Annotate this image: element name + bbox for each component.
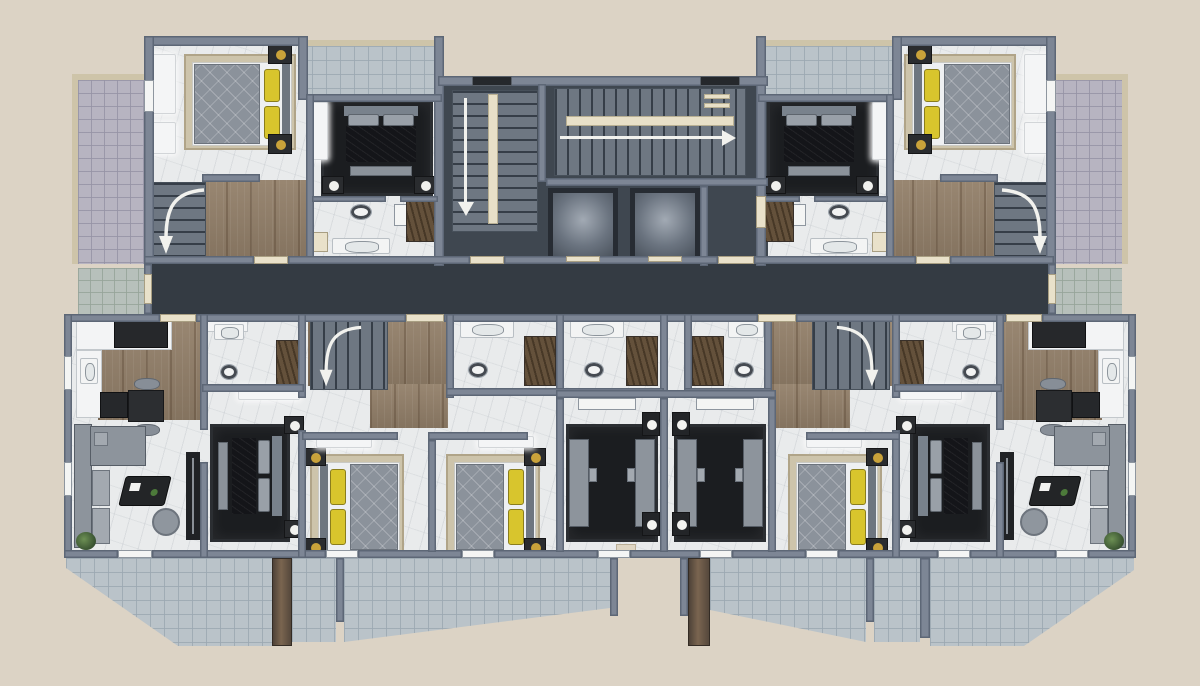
plant: [1104, 532, 1124, 550]
down-arrow-icon-head: [458, 202, 474, 216]
bed3-right-headboard: [918, 436, 928, 516]
door-threshold: [1048, 274, 1056, 304]
door-threshold: [916, 256, 950, 264]
sill-top-left: [296, 40, 440, 46]
nightstand-lamp: [902, 525, 912, 535]
bed3-right-duvet: [944, 438, 968, 514]
wall: [806, 432, 900, 440]
balcony-door: [462, 550, 494, 558]
nightstand: [304, 448, 326, 466]
wall: [892, 430, 900, 558]
nightstand-lamp: [421, 181, 431, 191]
nightstand-lamp: [863, 181, 873, 191]
door-threshold: [160, 314, 196, 322]
toilet: [962, 364, 980, 380]
toilet: [350, 204, 372, 220]
shower-upper-left: [406, 200, 436, 242]
wall: [336, 558, 344, 622]
balcony-left-upper: [78, 80, 150, 264]
nightstand-lamp: [916, 140, 926, 150]
wall: [754, 256, 916, 264]
nightstand-lamp: [276, 50, 286, 60]
nightstand: [322, 176, 344, 194]
nightstand-lamp: [531, 453, 541, 463]
sill-left-h: [72, 74, 152, 80]
balcony-door: [938, 550, 970, 558]
coffee-table-left-plant-dot: [150, 489, 159, 496]
right-arrow-icon-line: [560, 136, 724, 139]
nightstand: [908, 134, 932, 154]
nightstand-lamp: [873, 453, 883, 463]
sitting-room-right-sofas-cushion: [697, 468, 705, 482]
wall: [892, 36, 902, 100]
coffee-table-left: [118, 476, 171, 506]
bed2-right-duvet: [784, 126, 854, 162]
floor-plan-image: [0, 0, 1200, 686]
core-stair-mark-1: [704, 94, 730, 99]
bed2-left-duvet: [346, 126, 416, 162]
wall: [940, 174, 998, 182]
wall: [302, 432, 398, 440]
down-arrow-icon: [464, 98, 468, 216]
bed4-left-pillow: [330, 469, 346, 505]
nightstand: [414, 176, 436, 194]
sink-bath3-left-basin: [582, 324, 614, 337]
shower-bath2-left: [524, 336, 556, 386]
door-threshold: [758, 314, 796, 322]
down-arrow-icon-line: [464, 98, 467, 204]
door-threshold: [718, 256, 754, 264]
tv-unit-left: [186, 452, 200, 540]
lamp-table-lamp: [677, 520, 687, 530]
bed2-right-bench: [788, 166, 850, 176]
kitchen-left-fridge: [114, 320, 168, 348]
wall: [756, 36, 766, 266]
wall: [428, 432, 528, 440]
wall: [700, 186, 708, 266]
balcony-right-upper: [1050, 80, 1122, 264]
wall: [200, 462, 208, 558]
l-sofa-right-back: [1108, 424, 1126, 548]
nightstand: [268, 134, 292, 154]
coffee-table-right-deco: [1039, 483, 1051, 491]
wall: [64, 314, 160, 322]
nightstand: [908, 44, 932, 64]
wall: [494, 550, 598, 558]
balcony-top-right: [762, 46, 902, 96]
coffee-table-right: [1028, 476, 1081, 506]
bed4-left-duvet: [350, 464, 398, 550]
sink-ensuite-right-basin: [963, 327, 981, 338]
window: [64, 356, 72, 390]
core-stair-rail: [566, 116, 734, 126]
l-sofa-right-pillow: [1092, 432, 1106, 446]
lamp-table: [642, 412, 660, 436]
door-threshold: [254, 256, 288, 264]
sink-upper-right: [810, 238, 868, 254]
window: [144, 80, 154, 112]
nightstand-lamp: [902, 421, 912, 431]
elevator-sill: [648, 256, 682, 262]
bed3-left: [216, 436, 282, 516]
balcony-bottom-s1-left: [292, 558, 336, 642]
balcony-left-lower: [78, 268, 150, 318]
nightstand-lamp: [771, 181, 781, 191]
balcony-door: [326, 550, 358, 558]
right-arrow-icon-head: [722, 130, 736, 146]
kitchen-left-sink-basin: [85, 363, 96, 381]
shower-upper-right: [764, 200, 794, 242]
bed4-right-duvet: [798, 464, 846, 550]
wall: [538, 84, 546, 182]
sitting-room-left-sofas-sofa-left: [569, 439, 589, 527]
wall: [1128, 314, 1136, 558]
upper-hall-right-wood: [888, 180, 998, 260]
window: [1128, 462, 1136, 496]
wall: [546, 178, 768, 186]
vent-slot: [700, 76, 740, 86]
wall: [970, 550, 1056, 558]
wall: [684, 314, 692, 398]
window: [64, 462, 72, 496]
bed2-left: [344, 106, 418, 180]
sink-upper-right-basin: [823, 241, 858, 252]
pouf-left: [152, 508, 180, 536]
wall: [298, 36, 308, 100]
sill-left-v: [72, 74, 78, 264]
kitchen-left-cooktop: [100, 392, 128, 418]
tv-unit-left-screen: [192, 458, 194, 534]
stairwell-main-rail: [488, 94, 498, 224]
bed4-right-pillow: [850, 509, 866, 545]
toilet: [734, 362, 754, 378]
nightstand-lamp: [311, 453, 321, 463]
balcony-bottom-right: [930, 558, 1134, 646]
toilet: [584, 362, 604, 378]
sitting-room-left-sofas-cushion: [589, 468, 597, 482]
wall: [306, 94, 314, 264]
elevator-sill: [566, 256, 600, 262]
bath-mat: [312, 232, 328, 252]
sink-bath2-left-basin: [472, 324, 504, 337]
sink-upper-left: [332, 238, 390, 254]
wall: [444, 314, 758, 322]
wall: [64, 550, 118, 558]
wall: [814, 196, 888, 202]
wall: [428, 440, 436, 552]
toilet: [828, 204, 850, 220]
kitchen-right-sink-basin: [1107, 363, 1118, 381]
lamp-table-lamp: [647, 520, 657, 530]
coffee-table-right-plant-dot: [1060, 489, 1069, 496]
dining-table-left: [128, 390, 164, 422]
bed3-left-pillow: [258, 440, 270, 474]
balcony-door: [118, 550, 152, 558]
curved-stair-arrow-icon: [308, 320, 370, 390]
nightstand-lamp: [916, 50, 926, 60]
kitchen-right-cooktop: [1072, 392, 1100, 418]
pouf-right: [1020, 508, 1048, 536]
door-threshold: [144, 274, 152, 304]
nightstand-lamp: [276, 140, 286, 150]
wall: [504, 256, 718, 264]
door-threshold: [470, 256, 504, 264]
sitting-room-left-sofas-cushion: [627, 468, 635, 482]
master-bed-left-duvet: [194, 64, 260, 144]
bed3-right-bench: [972, 442, 982, 510]
wall: [556, 398, 564, 552]
nightstand: [866, 448, 888, 466]
sill-top-right: [760, 40, 904, 46]
bed2-left-bench: [350, 166, 412, 176]
master-bed-right-duvet: [944, 64, 1010, 144]
bed2-right-pillow: [786, 114, 817, 126]
wall: [762, 196, 800, 202]
elevator-1: [548, 188, 618, 262]
wall: [446, 314, 454, 398]
wall: [434, 36, 444, 266]
kitchen-right-sink: [1102, 358, 1120, 384]
balcony-right-lower: [1050, 268, 1122, 318]
corridor-floor: [148, 262, 1052, 316]
master-bed-left-headboard: [282, 64, 290, 144]
door-threshold: [756, 196, 766, 228]
bed3-left-headboard: [272, 436, 282, 516]
lamp-table-lamp: [647, 420, 657, 430]
bed3-left-duvet: [232, 438, 256, 514]
wall: [1088, 550, 1136, 558]
balcony-door: [700, 550, 732, 558]
wall: [768, 398, 776, 552]
sink-ensuite-left: [214, 324, 244, 340]
shower-ensuite-right: [898, 340, 924, 386]
wall: [144, 36, 308, 46]
lower-hall-right-wood-2: [772, 384, 850, 428]
kitchen-right-fridge: [1032, 320, 1086, 348]
sink-ensuite-left-basin: [221, 327, 239, 338]
wall: [892, 36, 1056, 46]
wall: [680, 558, 688, 616]
nightstand: [268, 44, 292, 64]
nightstand: [856, 176, 878, 194]
window: [1046, 80, 1056, 112]
toilet: [220, 364, 238, 380]
wall: [764, 314, 772, 398]
lamp-table-lamp: [677, 420, 687, 430]
master-bed-right-headboard: [914, 64, 922, 144]
door-threshold: [406, 314, 444, 322]
wall: [866, 558, 874, 622]
wall: [202, 384, 304, 392]
bed5-left-pillow: [508, 509, 524, 545]
kitchen-left-sink: [80, 358, 98, 384]
privacy-divider-left: [272, 558, 292, 646]
bed2-right: [782, 106, 856, 180]
curved-stair-arrow-icon: [828, 320, 890, 390]
wall: [660, 314, 668, 398]
sitting-room-right-sofas-cushion: [735, 468, 743, 482]
wall: [996, 462, 1004, 558]
wall: [838, 550, 938, 558]
wardrobe: [312, 102, 328, 160]
bed4-right-pillow: [850, 469, 866, 505]
wall: [64, 314, 72, 558]
bed3-right-pillow: [930, 478, 942, 512]
privacy-divider-right: [688, 558, 710, 646]
master-bed-right-pillow: [924, 69, 940, 102]
wall: [758, 94, 894, 102]
bed4-left-pillow: [330, 509, 346, 545]
sink-bath2-right: [728, 320, 764, 338]
wall: [556, 314, 564, 398]
balcony-door: [1056, 550, 1088, 558]
balcony-bottom-s2-right: [710, 558, 866, 642]
chair: [134, 378, 160, 390]
l-sofa-left-seat: [92, 470, 110, 506]
core-stair-mark-2: [704, 103, 730, 108]
balcony-top-left: [298, 46, 438, 96]
nightstand: [524, 448, 546, 466]
shelf: [578, 398, 636, 410]
bed3-right: [918, 436, 984, 516]
sink-bath3-left: [570, 320, 624, 338]
shelf: [696, 398, 754, 410]
upper-hall-left-wood: [202, 180, 312, 260]
tv-unit-right-screen: [1006, 458, 1008, 534]
wall: [306, 94, 442, 102]
shower-bath2-right: [692, 336, 724, 386]
bed5-left-pillow: [508, 469, 524, 505]
bed3-left-bench: [218, 442, 228, 510]
bed3-right-pillow: [930, 440, 942, 474]
balcony-door: [598, 550, 630, 558]
wall: [400, 196, 438, 202]
l-sofa-left-pillow: [94, 432, 108, 446]
wall: [312, 196, 386, 202]
core-stair-treads: [554, 88, 746, 176]
wall: [202, 174, 260, 182]
sink-bath2-right-basin: [736, 324, 758, 337]
lamp-table: [642, 512, 660, 536]
elevator-2: [630, 188, 700, 262]
wall: [886, 94, 894, 264]
wall: [1042, 314, 1136, 322]
bed2-right-pillow: [821, 114, 852, 126]
balcony-bottom-s2-left: [344, 558, 610, 642]
sill-right-v: [1122, 74, 1128, 264]
right-arrow-icon: [560, 136, 736, 140]
chair: [1040, 378, 1066, 390]
sitting-room-right-sofas-sofa-right: [743, 439, 763, 527]
balcony-bottom-s1-right: [874, 558, 920, 642]
toilet: [468, 362, 488, 378]
balcony-bottom-left: [66, 558, 272, 646]
bed5-left-duvet: [456, 464, 504, 550]
wall: [358, 550, 462, 558]
wall: [996, 314, 1004, 430]
wall: [920, 558, 930, 638]
plant: [76, 532, 96, 550]
sink-bath2-left: [460, 320, 514, 338]
vent-slot: [472, 76, 512, 86]
bed3-left-pillow: [258, 478, 270, 512]
door-threshold: [1006, 314, 1042, 322]
curved-stair-arrow-icon: [996, 182, 1056, 258]
wall: [894, 384, 1002, 392]
coffee-table-left-deco: [129, 483, 141, 491]
dining-table-right: [1036, 390, 1072, 422]
lamp-table: [672, 512, 690, 536]
shower-bath3-left: [626, 336, 658, 386]
sill-right-h: [1048, 74, 1128, 80]
bed2-left-pillow: [348, 114, 379, 126]
wall: [288, 256, 470, 264]
wall: [298, 430, 306, 558]
wall: [200, 314, 208, 430]
nightstand-lamp: [329, 181, 339, 191]
wall: [660, 398, 668, 552]
lower-hall-left-wood-2: [370, 384, 448, 428]
wall: [610, 558, 618, 616]
wall: [556, 390, 776, 398]
bed2-left-pillow: [383, 114, 414, 126]
curved-stair-arrow-icon: [150, 182, 210, 258]
sink-upper-left-basin: [345, 241, 380, 252]
master-bed-left-pillow: [264, 69, 280, 102]
window: [1128, 356, 1136, 390]
lamp-table: [672, 412, 690, 436]
sink-ensuite-right: [956, 324, 986, 340]
balcony-door: [806, 550, 838, 558]
l-sofa-right-seat: [1090, 470, 1108, 506]
